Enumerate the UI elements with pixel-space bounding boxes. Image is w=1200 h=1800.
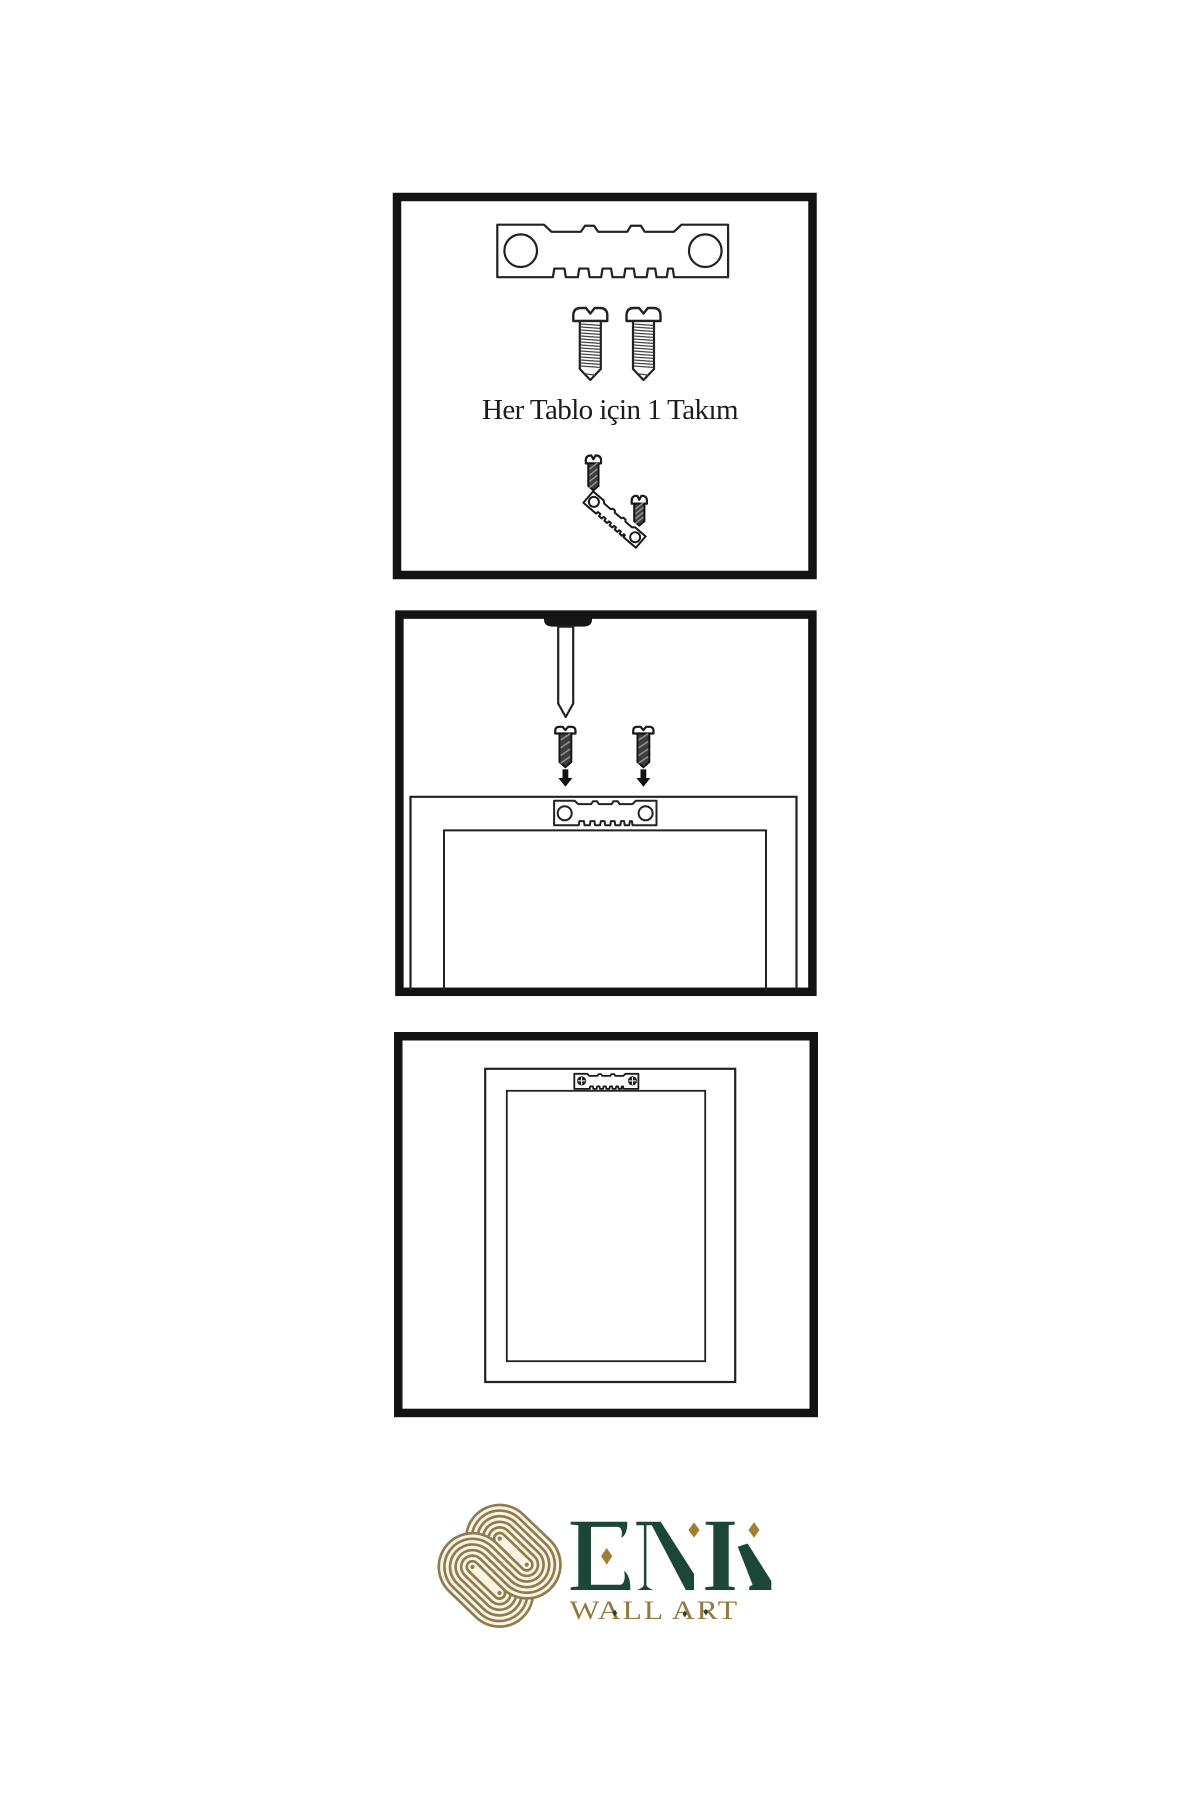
svg-text:Her Tablo için 1 Takım: Her Tablo için 1 Takım: [482, 394, 739, 426]
svg-text:WALL ART: WALL ART: [570, 1596, 740, 1625]
